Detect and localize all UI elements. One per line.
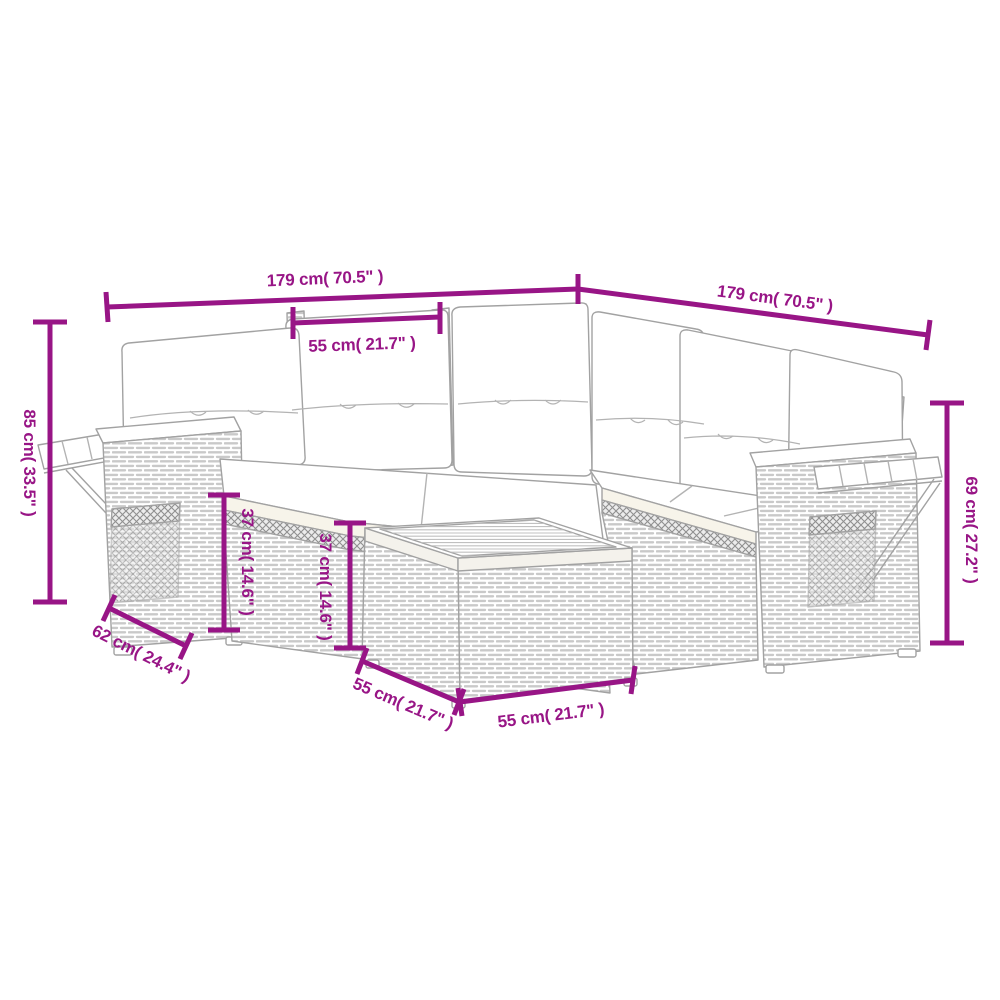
right-armrest [750,439,942,673]
sofa-set-line-drawing [0,0,1000,1000]
left-armrest [38,417,245,655]
product-dimension-diagram: 179 cm( 70.5" ) 179 cm( 70.5" ) 55 cm( 2… [0,0,1000,1000]
